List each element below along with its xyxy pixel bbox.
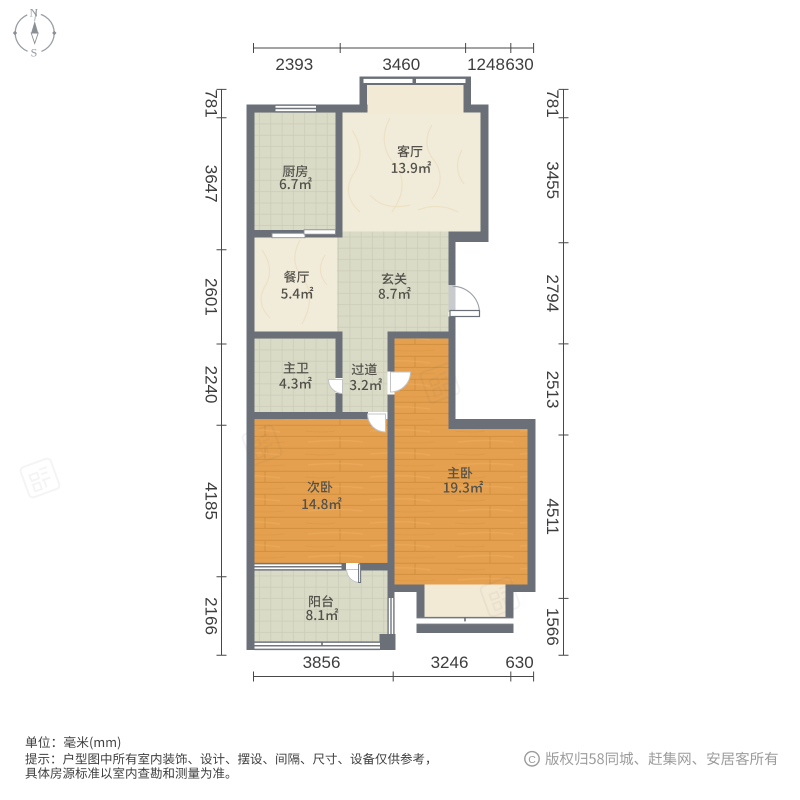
svg-text:S: S xyxy=(31,46,38,60)
svg-text:781: 781 xyxy=(202,89,221,117)
svg-text:1566: 1566 xyxy=(543,608,562,646)
svg-text:630: 630 xyxy=(505,653,533,672)
svg-text:2240: 2240 xyxy=(202,366,221,404)
svg-text:C: C xyxy=(528,754,536,766)
svg-text:2393: 2393 xyxy=(275,55,313,74)
svg-text:630: 630 xyxy=(505,55,533,74)
svg-text:2794: 2794 xyxy=(543,274,562,312)
svg-text:3246: 3246 xyxy=(431,653,469,672)
svg-text:3647: 3647 xyxy=(202,165,221,203)
svg-text:4185: 4185 xyxy=(202,482,221,520)
svg-text:2601: 2601 xyxy=(202,278,221,316)
svg-text:3455: 3455 xyxy=(543,161,562,199)
svg-text:2513: 2513 xyxy=(543,371,562,409)
svg-text:781: 781 xyxy=(543,89,562,117)
svg-text:2166: 2166 xyxy=(202,597,221,635)
svg-text:1248: 1248 xyxy=(467,55,505,74)
svg-text:3460: 3460 xyxy=(382,55,420,74)
svg-text:4511: 4511 xyxy=(543,498,562,535)
svg-text:3856: 3856 xyxy=(303,653,341,672)
svg-text:N: N xyxy=(29,6,38,20)
